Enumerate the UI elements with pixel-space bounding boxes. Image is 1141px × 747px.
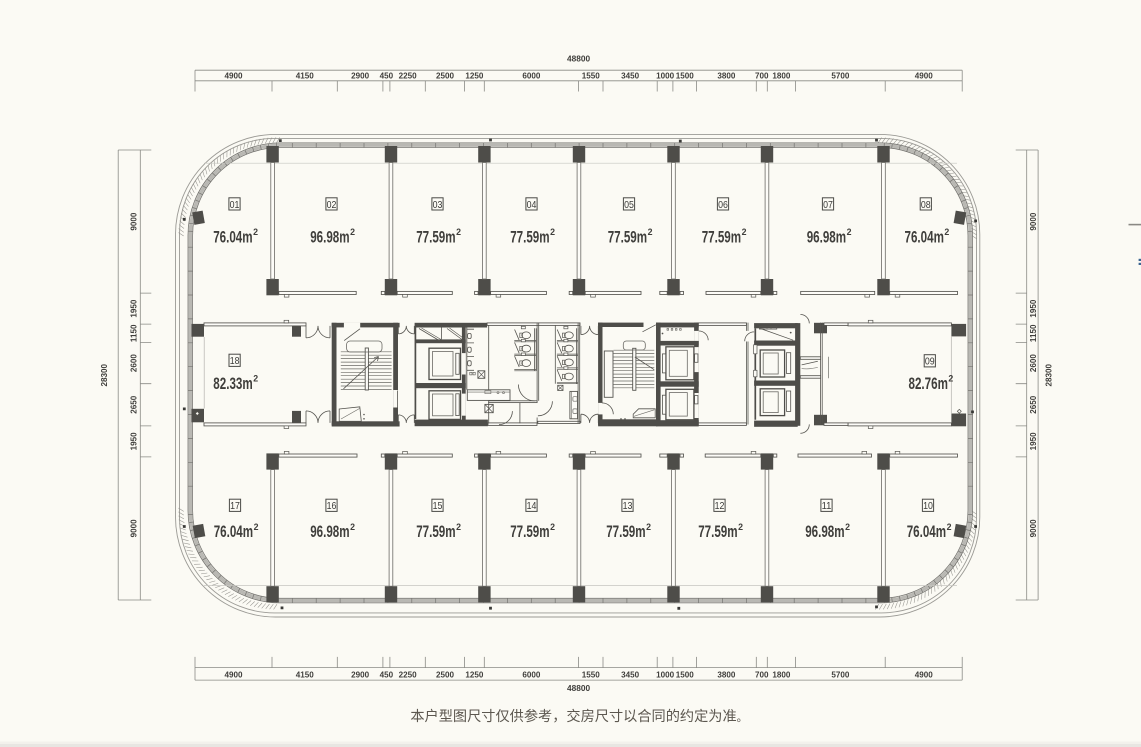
- svg-text:450: 450: [380, 71, 394, 80]
- svg-text:1550: 1550: [582, 671, 601, 680]
- svg-text:2: 2: [948, 374, 953, 384]
- svg-text:4900: 4900: [915, 71, 934, 80]
- svg-text:2: 2: [350, 227, 355, 237]
- svg-text:本户型图尺寸仅供参考，交房尺寸以合同的约定为准。: 本户型图尺寸仅供参考，交房尺寸以合同的约定为准。: [410, 708, 747, 725]
- svg-text:1950: 1950: [130, 299, 139, 318]
- svg-text:1500: 1500: [676, 71, 695, 80]
- svg-text:2: 2: [456, 522, 461, 532]
- svg-text:2: 2: [646, 522, 651, 532]
- svg-text:4150: 4150: [296, 71, 315, 80]
- svg-text:2500: 2500: [436, 671, 455, 680]
- svg-text:2250: 2250: [399, 71, 418, 80]
- svg-text:76.04m: 76.04m: [905, 228, 944, 246]
- svg-text:9000: 9000: [130, 212, 139, 231]
- svg-text:700: 700: [755, 671, 769, 680]
- svg-text:2: 2: [550, 522, 555, 532]
- svg-text:28300: 28300: [1045, 363, 1054, 386]
- svg-text:1000: 1000: [656, 671, 675, 680]
- svg-text:3800: 3800: [717, 671, 736, 680]
- svg-text:77.59m: 77.59m: [416, 228, 455, 246]
- svg-text:450: 450: [380, 671, 394, 680]
- svg-text:06: 06: [718, 200, 728, 211]
- svg-text:18: 18: [230, 356, 240, 367]
- svg-text:03: 03: [433, 200, 443, 211]
- svg-text:48800: 48800: [567, 683, 590, 693]
- svg-text:5700: 5700: [831, 671, 850, 680]
- svg-text:2: 2: [648, 227, 653, 237]
- svg-text:04: 04: [527, 200, 537, 211]
- svg-text:1950: 1950: [1029, 432, 1038, 451]
- svg-text:15: 15: [433, 501, 443, 512]
- svg-text:10: 10: [923, 501, 933, 512]
- svg-text:2650: 2650: [130, 395, 139, 414]
- svg-text:2: 2: [738, 522, 743, 532]
- svg-text:13: 13: [623, 501, 633, 512]
- svg-text:07: 07: [823, 200, 833, 211]
- svg-text:12: 12: [715, 501, 725, 512]
- svg-text:2: 2: [254, 522, 259, 532]
- svg-text:9000: 9000: [1029, 519, 1038, 538]
- svg-text:4900: 4900: [224, 671, 243, 680]
- svg-text:1150: 1150: [1029, 324, 1038, 342]
- svg-text:1800: 1800: [772, 71, 791, 80]
- svg-text:77.59m: 77.59m: [702, 228, 741, 246]
- svg-text:2: 2: [847, 227, 852, 237]
- svg-text:4150: 4150: [296, 671, 315, 680]
- svg-text:1950: 1950: [130, 432, 139, 451]
- svg-text:1250: 1250: [465, 71, 484, 80]
- svg-text:2250: 2250: [399, 671, 418, 680]
- svg-text:17: 17: [230, 501, 240, 512]
- svg-text:09: 09: [925, 357, 935, 368]
- svg-text:05: 05: [624, 200, 634, 211]
- svg-text:2600: 2600: [130, 354, 139, 373]
- svg-text:77.59m: 77.59m: [510, 523, 549, 541]
- svg-text:1800: 1800: [772, 671, 791, 680]
- svg-text:2650: 2650: [1029, 395, 1038, 414]
- svg-text:2600: 2600: [1029, 354, 1038, 373]
- svg-text:77.59m: 77.59m: [698, 523, 737, 541]
- svg-text:01: 01: [230, 200, 240, 211]
- svg-text:6000: 6000: [522, 671, 541, 680]
- svg-text:2: 2: [944, 227, 949, 237]
- svg-text:76.04m: 76.04m: [213, 228, 252, 246]
- svg-text:2: 2: [253, 374, 258, 384]
- svg-text:6000: 6000: [522, 71, 541, 80]
- svg-text:82.33m: 82.33m: [213, 375, 252, 393]
- svg-text:1250: 1250: [465, 671, 484, 680]
- svg-text:2: 2: [947, 522, 952, 532]
- svg-text:2900: 2900: [351, 671, 370, 680]
- svg-text:9000: 9000: [130, 519, 139, 538]
- svg-text:4900: 4900: [915, 671, 934, 680]
- svg-text:3450: 3450: [621, 671, 640, 680]
- svg-text:02: 02: [327, 200, 337, 211]
- svg-text:77.59m: 77.59m: [606, 523, 645, 541]
- svg-text:11: 11: [822, 501, 832, 512]
- svg-text:2: 2: [253, 227, 258, 237]
- svg-text:96.98m: 96.98m: [310, 228, 349, 246]
- svg-text:14: 14: [527, 501, 537, 512]
- svg-text:48800: 48800: [567, 54, 590, 64]
- svg-text:2: 2: [742, 227, 747, 237]
- svg-text:82.76m: 82.76m: [909, 375, 948, 393]
- svg-text:16: 16: [327, 501, 337, 512]
- svg-text:1950: 1950: [1029, 299, 1038, 318]
- svg-text:3800: 3800: [717, 71, 736, 80]
- svg-text:77.59m: 77.59m: [416, 523, 455, 541]
- svg-text:9000: 9000: [1029, 212, 1038, 231]
- svg-text:2: 2: [845, 522, 850, 532]
- svg-text:1000: 1000: [656, 71, 675, 80]
- svg-text:3450: 3450: [621, 71, 640, 80]
- svg-text:700: 700: [755, 71, 769, 80]
- svg-text:76.04m: 76.04m: [907, 523, 946, 541]
- svg-text:08: 08: [921, 200, 931, 211]
- svg-text:5700: 5700: [831, 71, 850, 80]
- svg-text:96.98m: 96.98m: [310, 523, 349, 541]
- svg-text:2500: 2500: [436, 71, 455, 80]
- svg-text:1150: 1150: [130, 324, 139, 342]
- svg-text:96.98m: 96.98m: [805, 523, 844, 541]
- svg-text:77.59m: 77.59m: [608, 228, 647, 246]
- svg-text:76.04m: 76.04m: [214, 523, 253, 541]
- svg-text:4900: 4900: [224, 71, 243, 80]
- svg-text:1550: 1550: [582, 71, 601, 80]
- svg-text:2: 2: [550, 227, 555, 237]
- svg-text:2: 2: [350, 522, 355, 532]
- svg-text:2900: 2900: [351, 71, 370, 80]
- svg-text:96.98m: 96.98m: [807, 228, 846, 246]
- svg-text:28300: 28300: [100, 363, 109, 386]
- svg-text:2: 2: [456, 227, 461, 237]
- svg-text:77.59m: 77.59m: [510, 228, 549, 246]
- svg-text:1500: 1500: [676, 671, 695, 680]
